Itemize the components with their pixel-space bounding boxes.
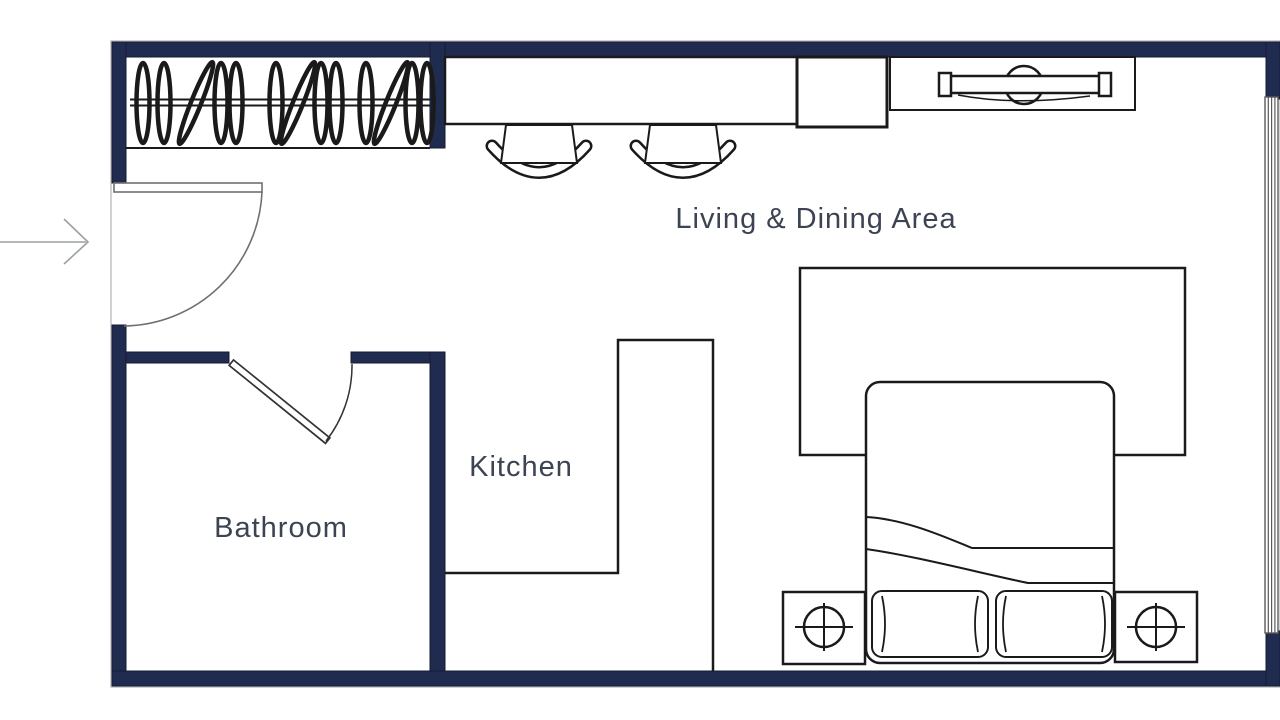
hanger bbox=[360, 63, 373, 143]
closet bbox=[126, 60, 434, 148]
entry-door-swing-arc bbox=[124, 192, 262, 326]
window-right bbox=[1265, 97, 1278, 633]
hanger bbox=[137, 63, 150, 143]
entry-door-leaf bbox=[114, 183, 262, 192]
kitchen-counter bbox=[445, 340, 713, 671]
stool-seat bbox=[501, 125, 577, 163]
wall-right-bottom bbox=[1266, 631, 1280, 686]
wall-left-lower bbox=[112, 325, 126, 686]
hanger bbox=[215, 63, 228, 143]
tv-console-group bbox=[890, 57, 1135, 110]
breakfast-bar-counter bbox=[445, 57, 797, 124]
hanger bbox=[406, 63, 419, 143]
hanger bbox=[421, 63, 434, 143]
wall-right-top bbox=[1266, 42, 1280, 99]
room-label-kitchen: Kitchen bbox=[469, 451, 573, 483]
entry-arrow bbox=[0, 219, 88, 264]
wall-left-upper bbox=[112, 42, 126, 183]
tv-screen-bar bbox=[950, 76, 1100, 93]
closet-hangers bbox=[137, 60, 434, 145]
breakfast-bar-group bbox=[445, 57, 887, 173]
entry-door bbox=[114, 183, 262, 326]
hanger bbox=[315, 63, 328, 143]
wall-bottom bbox=[112, 671, 1280, 686]
stool-seat bbox=[645, 125, 721, 163]
wall-bathroom-right bbox=[430, 352, 445, 671]
hanger bbox=[330, 63, 343, 143]
hanger bbox=[230, 63, 243, 143]
room-label-bathroom: Bathroom bbox=[214, 512, 348, 544]
bathroom-door-swing-arc bbox=[326, 364, 352, 441]
wall-bathroom-top-left bbox=[126, 352, 229, 363]
wall-top bbox=[112, 42, 1280, 57]
bathroom-door bbox=[229, 360, 352, 443]
floor-plan-svg: Living & Dining Area Kitchen Bathroom bbox=[0, 0, 1280, 720]
room-label-living-dining: Living & Dining Area bbox=[675, 203, 956, 235]
hanger-tilted bbox=[175, 60, 217, 145]
tv-end-cap bbox=[1099, 73, 1111, 96]
pillow-left bbox=[872, 591, 988, 657]
bathroom-door-leaf bbox=[229, 360, 330, 443]
tv-end-cap bbox=[939, 73, 951, 96]
floor-plan: Living & Dining Area Kitchen Bathroom bbox=[0, 0, 1280, 720]
pillow-right bbox=[996, 591, 1112, 657]
hanger bbox=[158, 63, 171, 143]
cabinet bbox=[797, 57, 887, 127]
